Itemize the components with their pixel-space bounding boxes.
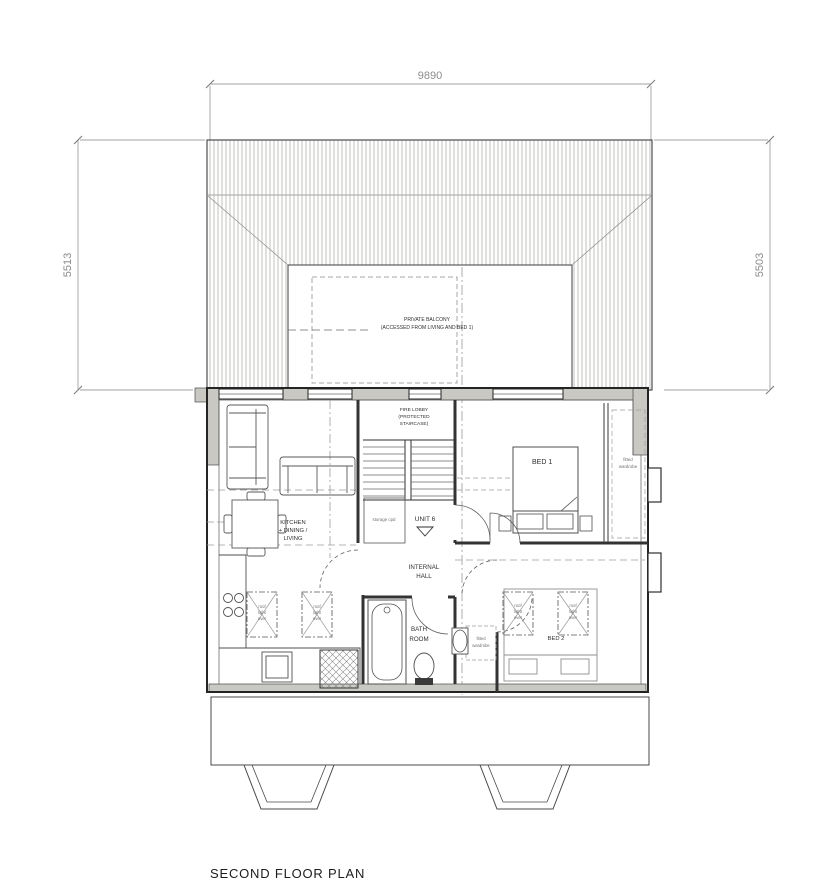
corridor-wardrobe-label-line2: wardrobe [472, 643, 490, 648]
kitchen-hatched-void [320, 650, 358, 688]
entrance-arrow-icon [417, 527, 433, 536]
drawing-title: SECOND FLOOR PLAN [210, 866, 365, 881]
rooflight-2-line3: over [313, 616, 322, 621]
rooflight-2-line1: roof [313, 604, 321, 609]
wardrobe-front [604, 403, 608, 543]
rooflight-3-line1: roof [514, 603, 522, 608]
rooflight-2: roof light over [302, 592, 332, 637]
staircase [363, 440, 454, 500]
bed1-label: BED 1 [532, 459, 552, 466]
hall-label-line1: INTERNAL [409, 564, 440, 571]
left-dimension [74, 136, 205, 394]
rooflight-1-line3: over [258, 616, 267, 621]
rooflight-1: roof light over [247, 592, 277, 637]
rooflight-3-line3: over [514, 615, 523, 620]
fire-lobby-label-line1: FIRE LOBBY [400, 407, 429, 413]
rooflight-2-line2: light [313, 610, 322, 615]
rooflight-4-line3: over [569, 615, 578, 620]
rooflight-1-line2: light [258, 610, 267, 615]
hall-label-line2: HALL [416, 573, 432, 580]
dining-table [224, 492, 286, 556]
lower-roof [211, 697, 649, 809]
bathroom-label-line1: BATH [411, 626, 427, 633]
roof-deck [207, 140, 652, 390]
bathroom-label-line2: ROOM [409, 636, 428, 643]
fire-lobby-label-line3: STAIRCASE) [400, 421, 429, 427]
rooflight-3: roof light over [503, 592, 533, 635]
balcony-label-line1: PRIVATE BALCONY [404, 317, 451, 323]
kitchen-label-line1: KITCHEN [280, 520, 305, 526]
rooflight-4-line1: roof [569, 603, 577, 608]
rooflight-3-line2: light [514, 609, 523, 614]
bed1-wardrobe-label-line2: wardrobe [619, 464, 638, 469]
right-wall-bump-1 [648, 468, 661, 502]
balcony-label-line2: (ACCESSED FROM LIVING AND BED 1) [381, 325, 474, 331]
rooflight-4-line2: light [569, 609, 578, 614]
bed1-wardrobe-label-line1: fitted [623, 457, 633, 462]
rooflight-4: roof light over [558, 592, 588, 635]
top-dimension [206, 80, 655, 140]
bathtub [368, 600, 406, 684]
balcony: PRIVATE BALCONY (ACCESSED FROM LIVING AN… [288, 267, 473, 695]
storage-label: storage cpd [373, 517, 397, 522]
sofa-horizontal [280, 457, 355, 495]
rooflight-1-line1: roof [258, 604, 266, 609]
sofa-vertical [227, 405, 268, 489]
kitchen-label-line2: + DINING / [279, 528, 308, 534]
corridor-wardrobe-label-line1: fitted [476, 636, 486, 641]
floor-plan-drawing: 9890 5513 5503 PRIVATE BALCONY (ACCESSED… [0, 0, 817, 892]
dimension-right-value: 5503 [754, 253, 766, 277]
toilet [414, 653, 434, 685]
drawing-sheet: 9890 5513 5503 PRIVATE BALCONY (ACCESSED… [0, 0, 817, 892]
unit6-label: UNIT 6 [415, 516, 436, 523]
dimension-top-value: 9890 [418, 70, 442, 82]
wash-basin [452, 628, 468, 654]
dimension-left-value: 5513 [62, 253, 74, 277]
kitchen-label-line3: LIVING [283, 536, 302, 542]
bed2-label: BED 2 [548, 636, 565, 642]
fire-lobby-label-line2: (PROTECTED [398, 414, 430, 420]
floor-plan: FIRE LOBBY (PROTECTED STAIRCASE) storage… [195, 388, 661, 692]
right-wall-bump-2 [648, 553, 661, 592]
